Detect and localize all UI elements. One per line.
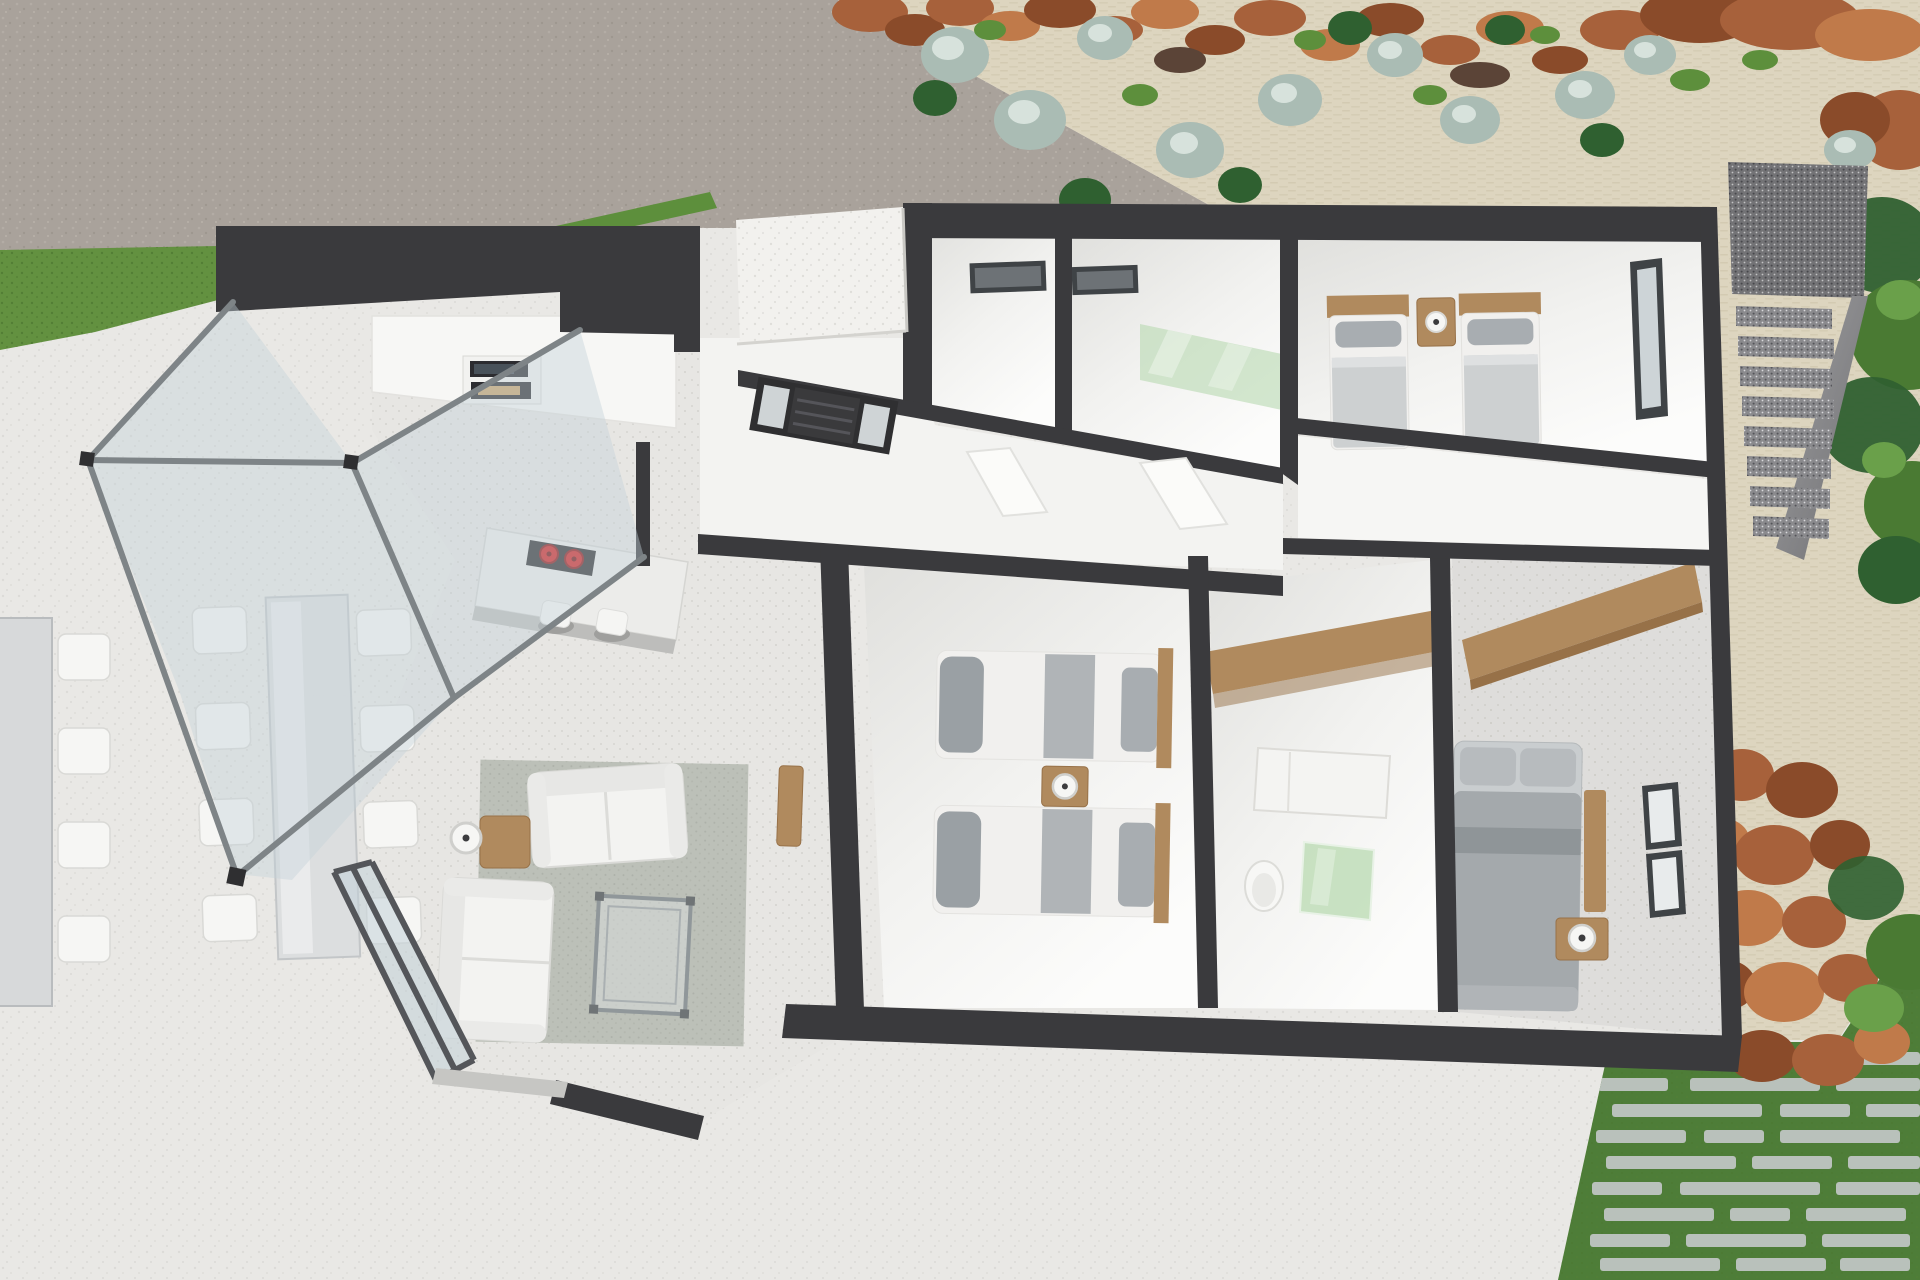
pergola-connector-2 — [343, 454, 359, 470]
floor-plan-render — [0, 0, 1920, 1280]
pergola-connector-3 — [226, 867, 246, 887]
shower-room-slot-window — [1072, 265, 1139, 295]
wooden-sideboard — [777, 766, 804, 847]
floor-lamp — [451, 823, 481, 853]
pergola-connector-1 — [79, 451, 95, 467]
master-pillow-left — [1460, 747, 1517, 786]
glass-coffee-table — [589, 892, 695, 1019]
vanity — [1254, 748, 1390, 818]
stair-landing — [1728, 162, 1868, 298]
green-glass-shower — [1300, 842, 1374, 920]
twin-bedroom-window — [1630, 258, 1668, 420]
dining-table-left — [0, 618, 52, 1006]
sofa-horizontal — [527, 763, 688, 869]
stone-paver-path — [1590, 1052, 1920, 1271]
entry-canopy-roof — [736, 207, 907, 345]
wall-kitchen-right — [674, 226, 700, 352]
master-pillow-right — [1520, 748, 1577, 787]
headboard-upper — [1156, 648, 1173, 768]
wall-divider-b — [1280, 238, 1298, 485]
bedroom-two-floor — [864, 566, 1198, 1008]
headboard-lower — [1154, 803, 1171, 923]
wooden-side-table — [480, 816, 530, 868]
utility-slot-window — [969, 261, 1046, 294]
wall-divider-a — [1055, 238, 1072, 442]
master-side-unit — [1584, 790, 1606, 912]
floor-plan-canvas — [0, 0, 1920, 1280]
wall-rightwing-top — [903, 203, 1717, 242]
